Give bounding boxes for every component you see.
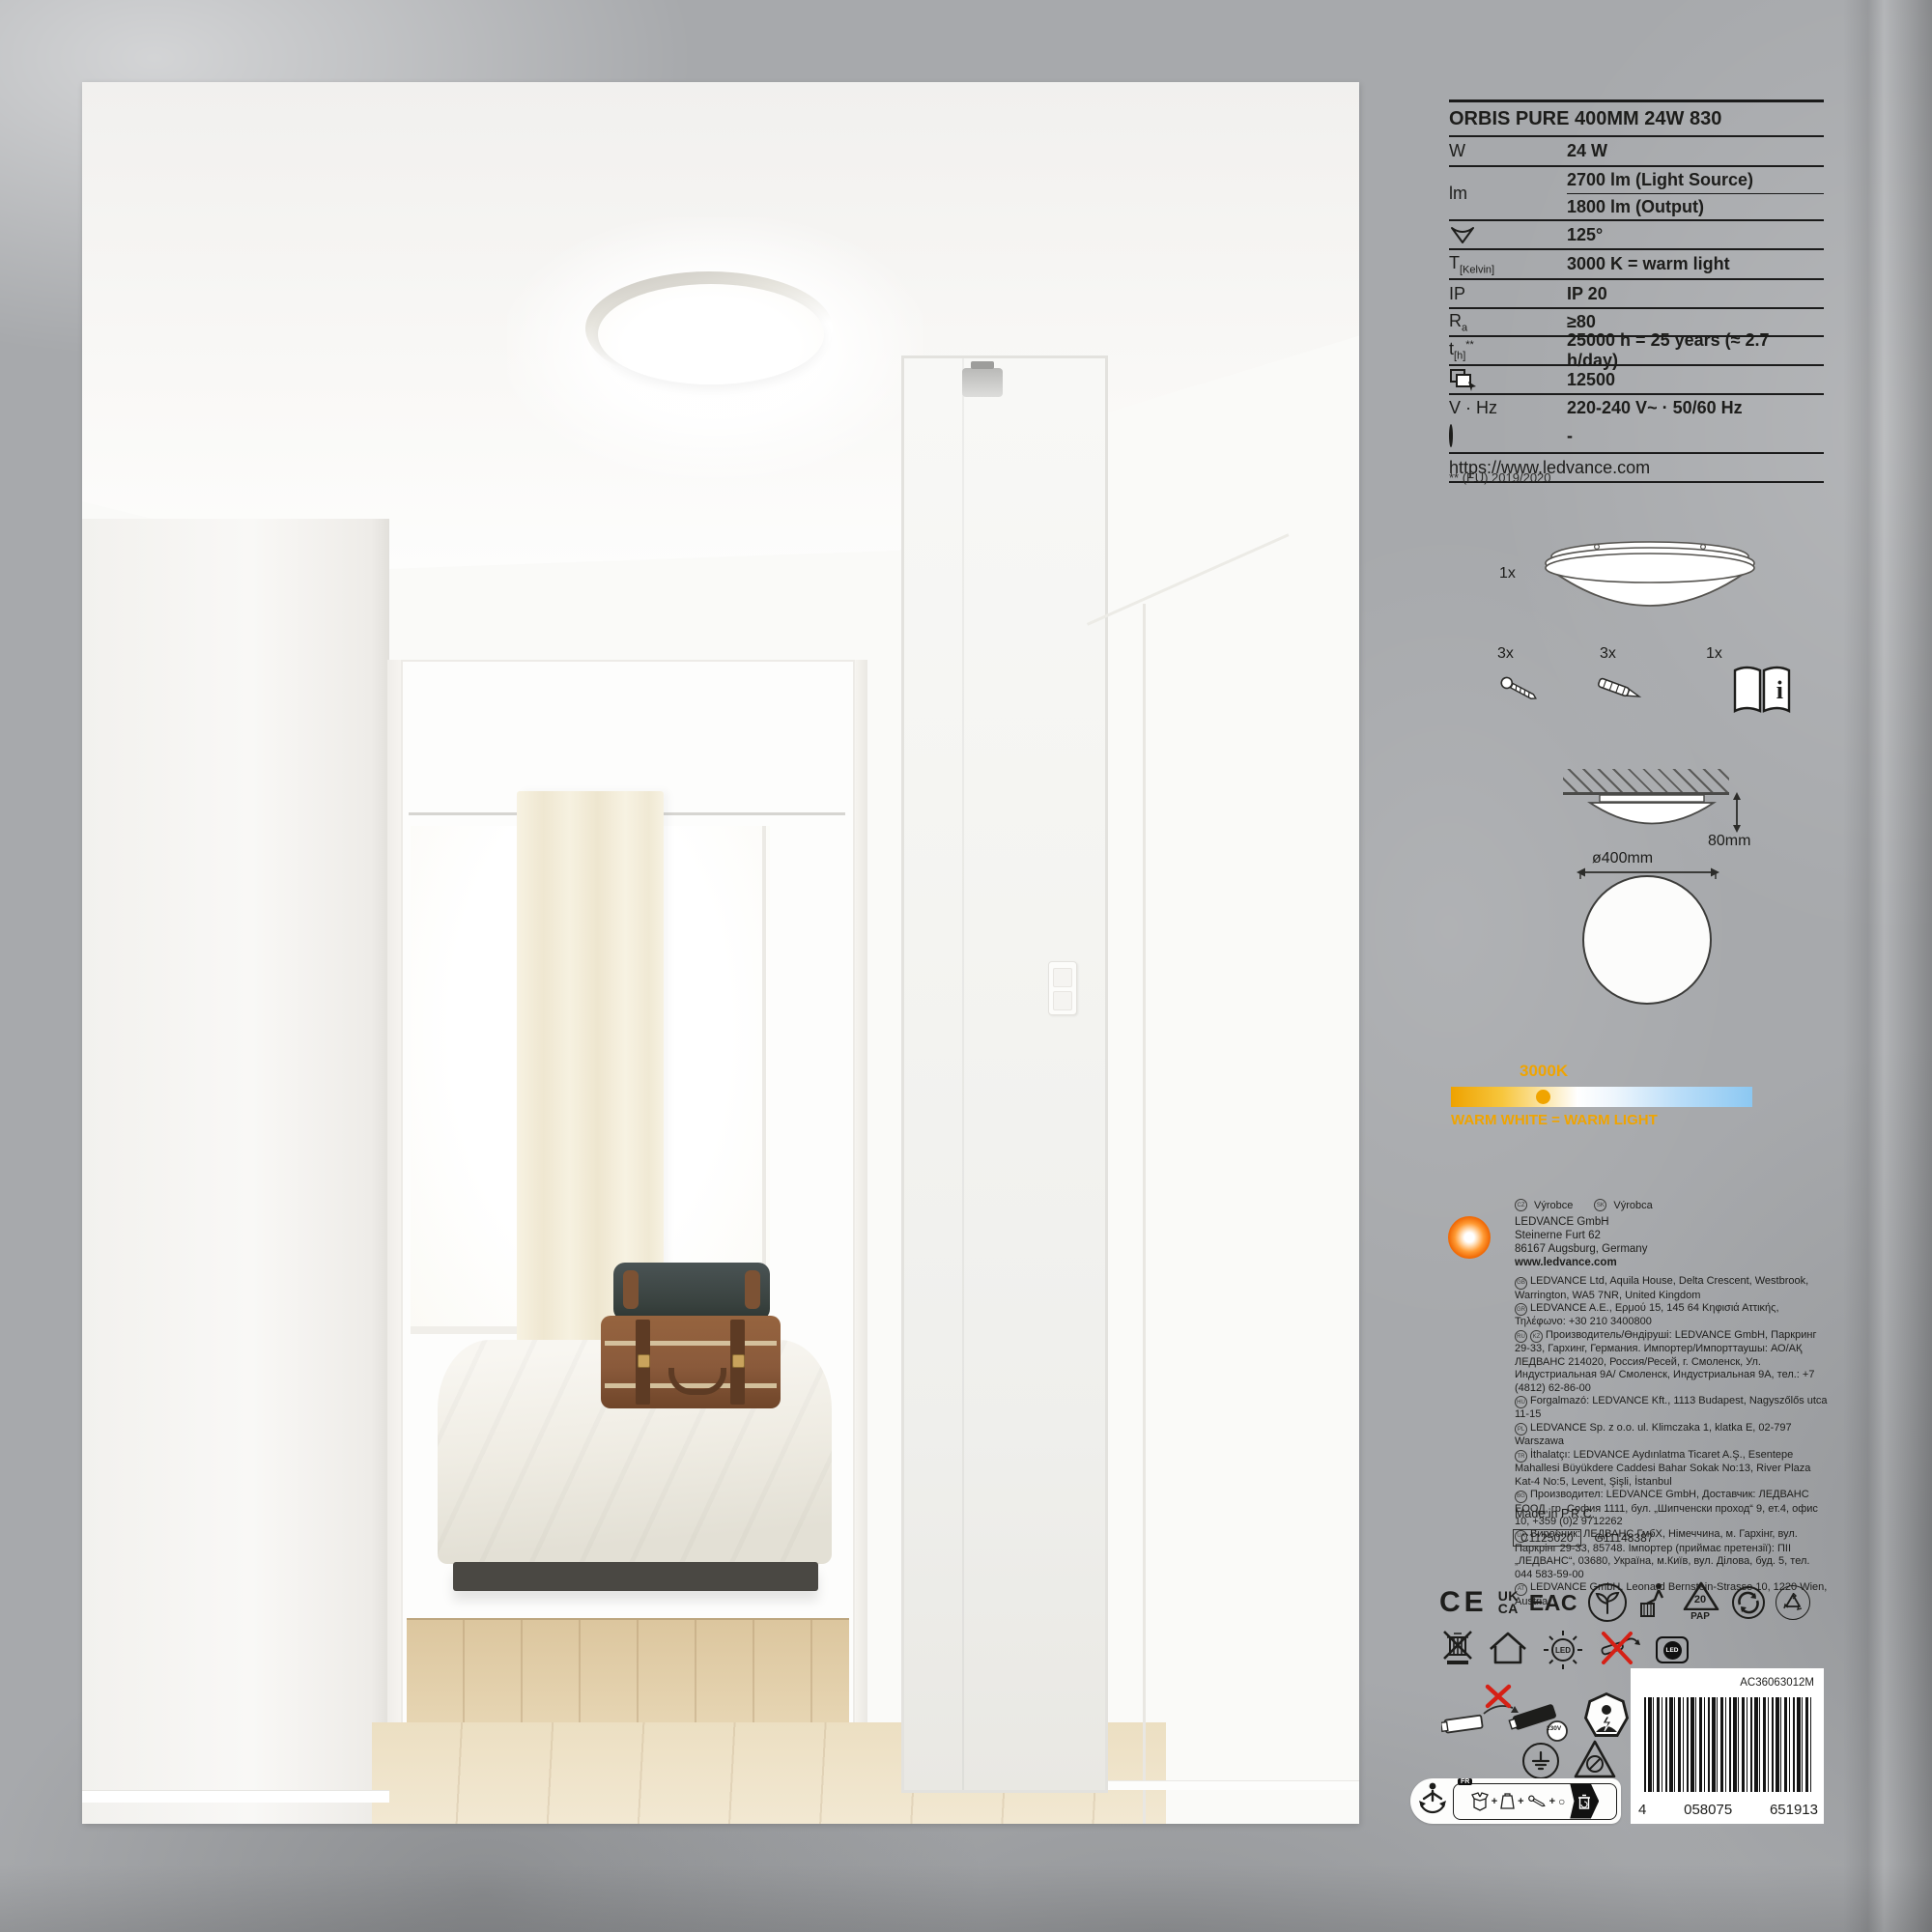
mirror <box>901 355 1108 1793</box>
wall-plug-icon <box>1592 672 1646 712</box>
beam-angle-value: 125° <box>1567 225 1824 245</box>
luminaire-side-profile-icon <box>1586 794 1718 836</box>
product-codes: C1125020 G11148387 <box>1513 1529 1653 1547</box>
window-frame <box>762 826 766 1334</box>
ceiling-light <box>598 284 824 384</box>
cert-marks-row-2: LED LED <box>1441 1629 1689 1671</box>
screw-icon <box>1495 668 1544 716</box>
tidy-man-icon <box>1637 1582 1670 1624</box>
triman-sorting-strip: FR + + + ○ <box>1410 1778 1621 1824</box>
weee-crossed-bin-icon <box>1441 1629 1474 1672</box>
height-dimension: 80mm <box>1708 833 1750 850</box>
spec-row-voltage: V · Hz 220-240 V~ · 50/60 Hz <box>1449 395 1824 420</box>
door-jamb-right <box>855 660 867 1748</box>
country-code-chip: SK <box>1594 1199 1606 1211</box>
ledvance-logo <box>1448 1216 1491 1259</box>
dimmer-icon <box>1449 424 1453 447</box>
package-bottom-shading <box>0 1864 1932 1932</box>
eac-mark-icon: EAC <box>1529 1590 1577 1616</box>
led-badge-icon: LED <box>1656 1636 1689 1663</box>
baseboard <box>82 1790 389 1803</box>
cert-marks-row-1: CE UKCA EAC 20 PAP <box>1439 1580 1810 1625</box>
suitcase-top <box>613 1263 770 1321</box>
company-address: LEDVANCE GmbH Steinerne Furt 62 86167 Au… <box>1515 1215 1647 1269</box>
spec-row-kelvin: T[Kelvin] 3000 K = warm light <box>1449 250 1824 280</box>
producer-labels: CZ Výrobce SK Výrobca <box>1515 1199 1653 1211</box>
suitcase-handle <box>668 1368 726 1395</box>
kelvin-value: 3000 K = warm light <box>1567 254 1824 274</box>
switching-cycles-value: 12500 <box>1567 370 1824 390</box>
voltage-value: 220-240 V~ · 50/60 Hz <box>1567 398 1824 418</box>
dimmer-value: - <box>1567 426 1824 446</box>
pap-20-recycling-icon: 20 PAP <box>1681 1581 1721 1624</box>
lumen-source-value: 2700 lm (Light Source) <box>1567 167 1824 194</box>
right-door-frame-top <box>1087 533 1290 625</box>
cct-gradient-bar <box>1451 1087 1752 1107</box>
driver-voltage-label: 230V <box>1547 1725 1561 1732</box>
protective-earth-icon <box>1522 1743 1559 1779</box>
bed-base <box>453 1562 818 1591</box>
ukca-mark-icon: UKCA <box>1498 1590 1519 1615</box>
led-lamp-sun-icon: LED <box>1542 1629 1584 1671</box>
global-code: G11148387 <box>1595 1531 1654 1545</box>
switching-cycles-icon <box>1449 368 1567 391</box>
cct-caption: WARM WHITE = WARM LIGHT <box>1451 1112 1658 1128</box>
company-website: www.ledvance.com <box>1515 1256 1647 1269</box>
company-city: 86167 Augsburg, Germany <box>1515 1242 1647 1256</box>
plant-circle-icon <box>1588 1583 1627 1622</box>
height-arrow <box>1727 792 1747 838</box>
cct-value: 3000K <box>1520 1062 1568 1081</box>
suitcase-bottom <box>601 1316 781 1408</box>
bedroom-doorway <box>401 660 855 1748</box>
regulation-footnote: ** (EU) 2019/2020 <box>1449 470 1551 485</box>
lifetime-value: 25000 h = 25 years (≈ 2.7 h/day) <box>1567 330 1824 371</box>
cct-marker-dot <box>1536 1090 1550 1104</box>
watt-value: 24 W <box>1567 141 1824 161</box>
right-door-frame <box>1143 604 1146 1824</box>
lumen-output-value: 1800 lm (Output) <box>1567 194 1824 220</box>
warning-triangle-icon <box>1573 1739 1617 1784</box>
watt-label: W <box>1449 141 1567 161</box>
carton-box-icon <box>1471 1792 1489 1811</box>
triman-icon <box>1416 1781 1449 1821</box>
spec-row-lifetime: t[h]** 25000 h = 25 years (≈ 2.7 h/day) <box>1449 337 1824 366</box>
producer-label-cz: Výrobce <box>1534 1200 1573 1211</box>
diameter-circle-icon <box>1582 875 1712 1005</box>
no-halogen-retrofit-icon <box>1598 1630 1642 1671</box>
fr-tag: FR <box>1458 1778 1472 1785</box>
recycled-carton-icon <box>1776 1585 1810 1620</box>
luminaire-drawing-icon <box>1541 531 1759 642</box>
anchors-qty: 3x <box>1600 645 1616 663</box>
address-entry: HUForgalmazó: LEDVANCE Kft., 1113 Budape… <box>1515 1395 1830 1422</box>
lumen-label: lm <box>1449 184 1567 204</box>
recycle-bin-arrow-icon <box>1570 1784 1599 1819</box>
voltage-label: V · Hz <box>1449 398 1567 418</box>
manual-qty: 1x <box>1706 645 1722 663</box>
company-street: Steinerne Furt 62 <box>1515 1229 1647 1242</box>
reflected-spot-fixture <box>962 368 1003 397</box>
indoor-use-house-icon <box>1488 1630 1528 1671</box>
spec-row-dimmer: - <box>1449 420 1824 454</box>
beam-angle-icon <box>1449 225 1567 244</box>
kelvin-label: T <box>1449 253 1460 272</box>
product-title: ORBIS PURE 400MM 24W 830 <box>1449 102 1824 137</box>
package-fold-edge <box>1843 0 1932 1932</box>
bag-icon <box>1500 1792 1515 1810</box>
spec-row-beam-angle: 125° <box>1449 221 1824 250</box>
ip-label: IP <box>1449 284 1567 304</box>
ceiling-hatch-icon <box>1563 769 1729 795</box>
left-wall <box>82 519 389 1824</box>
producer-label-sk: Výrobca <box>1613 1200 1652 1211</box>
regional-addresses: GBLEDVANCE Ltd, Aquila House, Delta Cres… <box>1515 1275 1830 1608</box>
ean-number: 4 058075 651913 <box>1636 1802 1820 1818</box>
green-dot-icon <box>1732 1586 1765 1619</box>
spec-row-watt: W 24 W <box>1449 137 1824 167</box>
package-back-panel: ORBIS PURE 400MM 24W 830 W 24 W lm 2700 … <box>0 0 1932 1932</box>
driver-not-replaceable-icon: 230V <box>1441 1681 1573 1745</box>
address-entry: GBLEDVANCE Ltd, Aquila House, Delta Cres… <box>1515 1275 1830 1302</box>
config-code: C1125020 <box>1513 1529 1581 1547</box>
manual-i-glyph: i <box>1776 676 1783 705</box>
spec-row-lumen: lm 2700 lm (Light Source) 1800 lm (Outpu… <box>1449 167 1824 221</box>
address-entry: PLLEDVANCE Sp. z o.o. ul. Klimczaka 1, k… <box>1515 1422 1830 1449</box>
ce-mark-icon: CE <box>1439 1586 1488 1619</box>
light-switch <box>1048 961 1077 1015</box>
sorting-items-box: FR + + + ○ <box>1453 1783 1617 1820</box>
address-entry: GRLEDVANCE A.E., Ερμού 15, 145 64 Κηφισι… <box>1515 1302 1830 1329</box>
spec-row-switching-cycles: 12500 <box>1449 366 1824 395</box>
cri-label: R <box>1449 311 1462 330</box>
address-entry: RUKZПроизводитель/Өндіруші: LEDVANCE Gmb… <box>1515 1329 1830 1395</box>
company-name: LEDVANCE GmbH <box>1515 1215 1647 1229</box>
spec-row-ip: IP IP 20 <box>1449 280 1824 309</box>
barcode-block: AC36063012M 4 058075 651913 <box>1631 1668 1824 1824</box>
instruction-manual-icon: i <box>1731 663 1793 724</box>
sku-code: AC36063012M <box>1740 1677 1814 1689</box>
barcode-bars <box>1644 1697 1812 1792</box>
circle-item-icon: ○ <box>1558 1795 1565 1808</box>
country-code-chip: CZ <box>1515 1199 1527 1211</box>
cri-value: ≥80 <box>1567 312 1824 332</box>
hallway-photo <box>82 82 1359 1824</box>
luminaire-qty: 1x <box>1499 565 1516 582</box>
screws-qty: 3x <box>1497 645 1514 663</box>
screw-small-icon <box>1527 1794 1547 1809</box>
door-jamb-left <box>387 660 401 1748</box>
qualified-electrician-icon <box>1584 1692 1629 1737</box>
baseboard <box>1108 1780 1359 1790</box>
spec-table: ORBIS PURE 400MM 24W 830 W 24 W lm 2700 … <box>1449 99 1824 483</box>
address-entry: TRİthalatçı: LEDVANCE Aydınlatma Ticaret… <box>1515 1449 1830 1489</box>
ip-value: IP 20 <box>1567 284 1824 304</box>
made-in: Made in P.R.C. <box>1515 1507 1595 1520</box>
